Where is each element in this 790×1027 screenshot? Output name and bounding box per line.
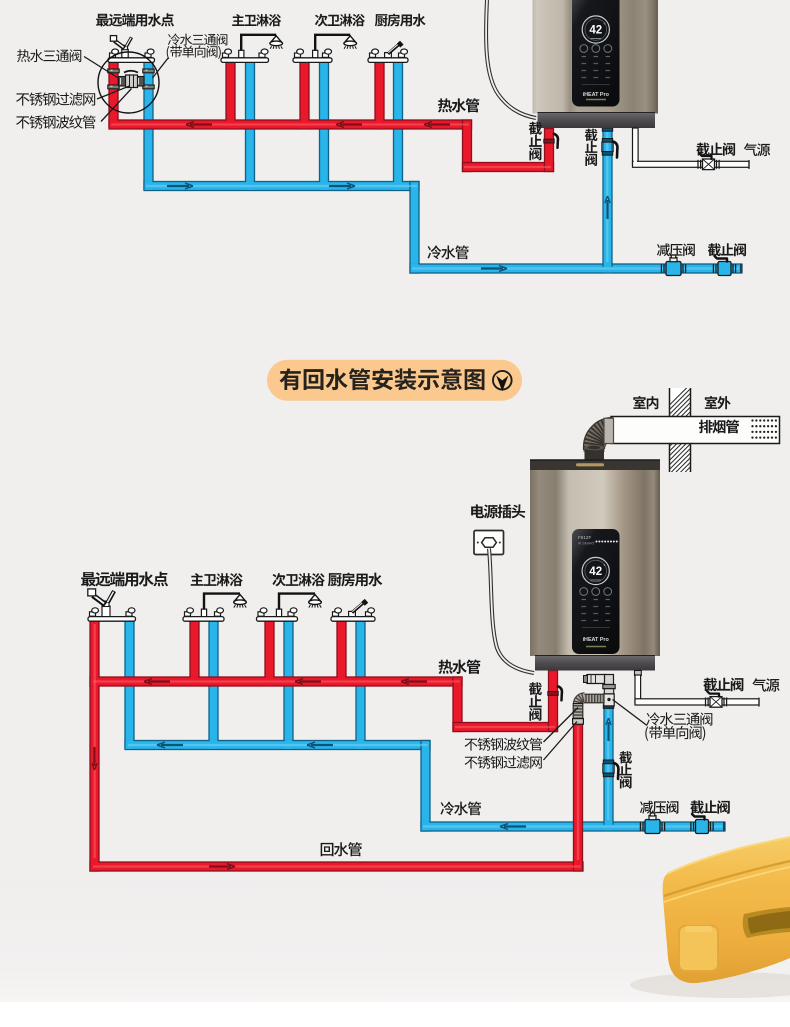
svg-text:F612F: F612F (578, 535, 591, 540)
svg-text:42: 42 (589, 566, 602, 578)
svg-text:AI SMART: AI SMART (578, 542, 596, 546)
svg-text:42: 42 (589, 25, 602, 37)
svg-text:°: ° (604, 23, 606, 29)
svg-text:iHEAT Pro: iHEAT Pro (583, 637, 610, 643)
svg-text:°: ° (603, 564, 605, 570)
svg-text:iHEAT Pro: iHEAT Pro (583, 92, 610, 98)
